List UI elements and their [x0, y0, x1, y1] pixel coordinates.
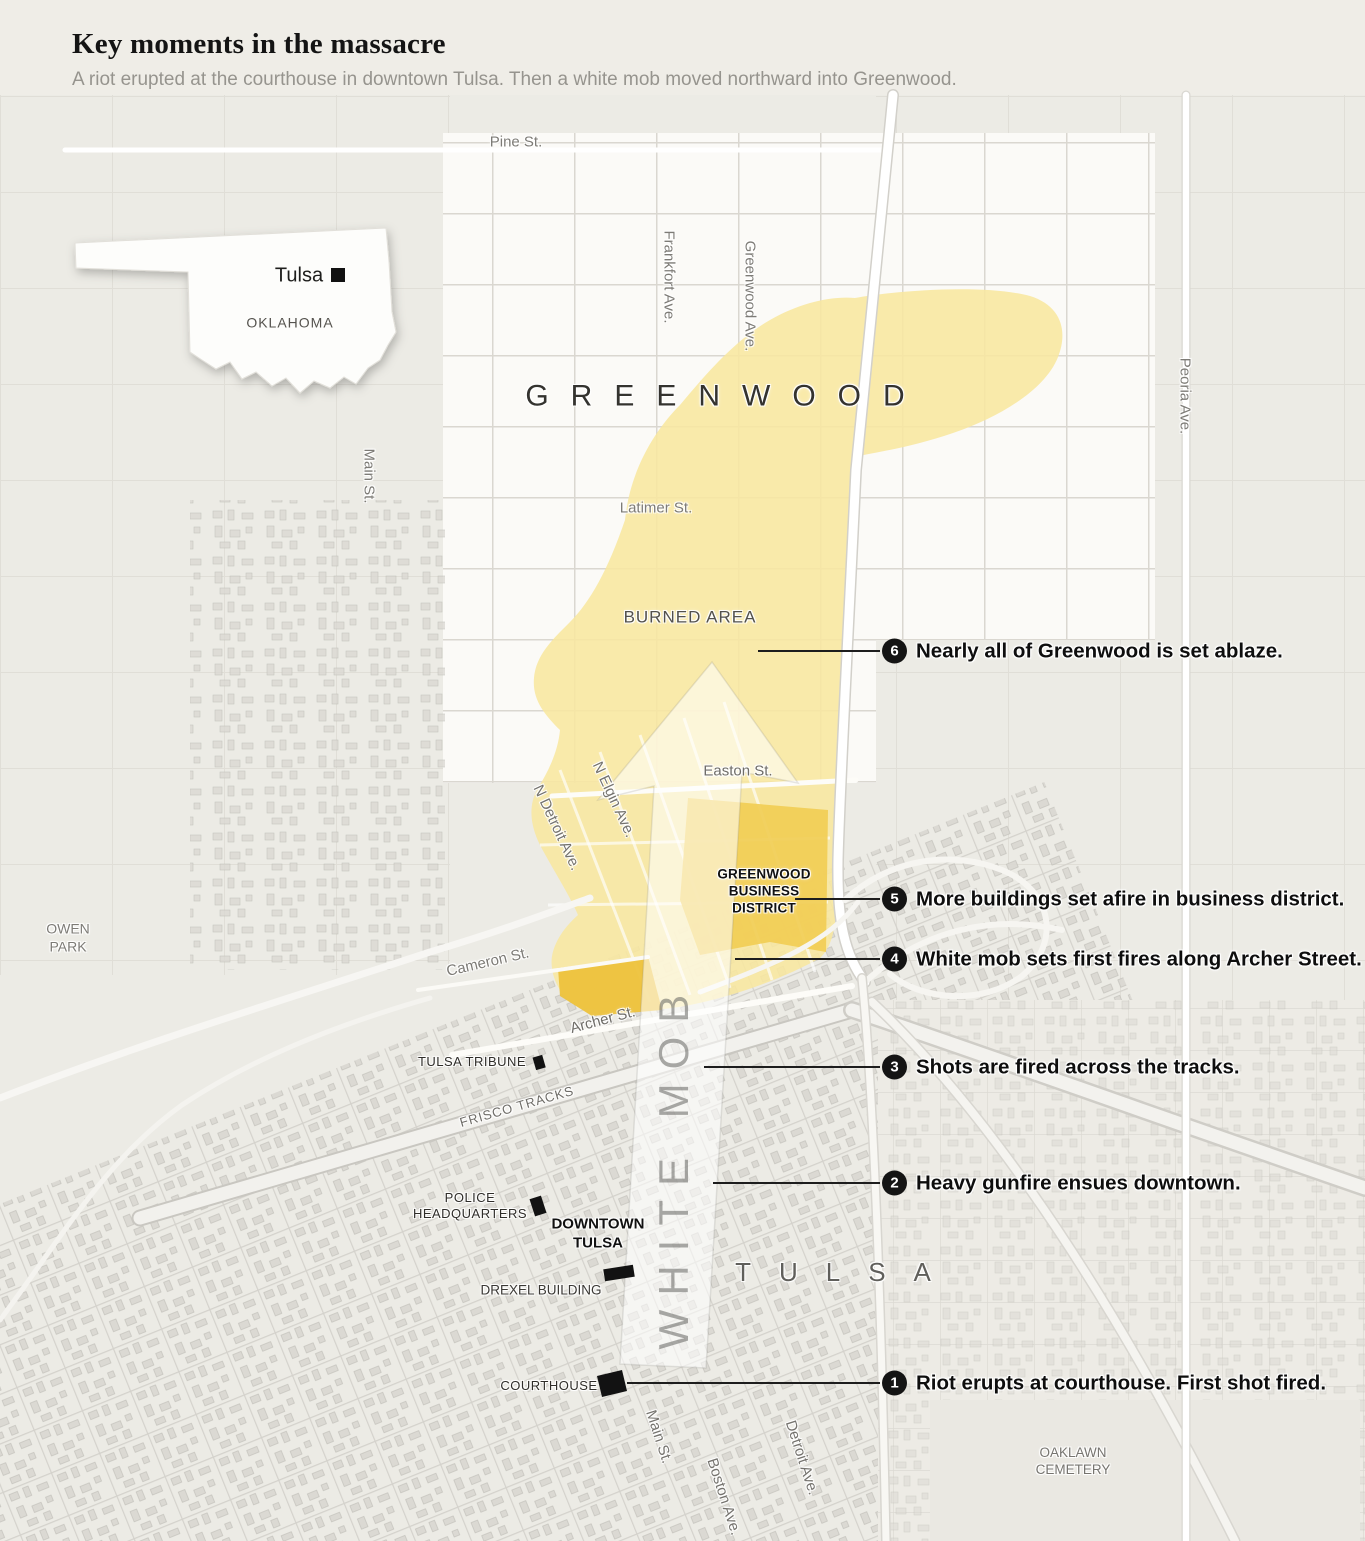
inset-tulsa-marker	[331, 268, 345, 282]
annotation-2-text: Heavy gunfire ensues downtown.	[916, 1171, 1241, 1195]
label-frankfort-ave: Frankfort Ave.	[659, 230, 678, 323]
annotation-1-badge: 1	[882, 1371, 907, 1396]
label-tulsa-city: TULSA	[735, 1256, 959, 1289]
label-peoria-ave: Peoria Ave.	[1175, 358, 1194, 434]
inset-tulsa-label: Tulsa	[275, 264, 323, 289]
label-oaklawn-cemetery: OAKLAWN CEMETERY	[1026, 1445, 1121, 1479]
annotation-4-badge: 4	[882, 947, 907, 972]
annotation-3-badge: 3	[882, 1055, 907, 1080]
annotation-6-text: Nearly all of Greenwood is set ablaze.	[916, 639, 1283, 663]
label-drexel-building: DREXEL BUILDING	[480, 1283, 601, 1300]
annotation-1: 1 Riot erupts at courthouse. First shot …	[882, 1371, 1326, 1396]
annotation-5: 5 More buildings set afire in business d…	[882, 887, 1344, 912]
annotation-6: 6 Nearly all of Greenwood is set ablaze.	[882, 639, 1283, 664]
label-pine-st: Pine St.	[490, 134, 543, 153]
annotation-4-text: White mob sets first fires along Archer …	[916, 947, 1362, 971]
label-latimer-st: Latimer St.	[620, 500, 693, 519]
annotation-3: 3 Shots are fired across the tracks.	[882, 1055, 1240, 1080]
infographic-root: { "header": { "title": "Key moments in t…	[0, 0, 1365, 1541]
annotation-1-text: Riot erupts at courthouse. First shot fi…	[916, 1371, 1326, 1395]
label-main-st-north: Main St.	[359, 448, 378, 503]
label-police-headquarters: POLICE HEADQUARTERS	[408, 1190, 532, 1223]
label-burned-area: BURNED AREA	[624, 606, 757, 627]
label-greenwood-ave: Greenwood Ave.	[740, 241, 759, 352]
annotation-2: 2 Heavy gunfire ensues downtown.	[882, 1171, 1241, 1196]
label-easton-st: Easton St.	[703, 763, 772, 782]
annotation-3-text: Shots are fired across the tracks.	[916, 1055, 1240, 1079]
label-greenwood-district: GREENWOOD	[525, 377, 926, 415]
label-courthouse: COURTHOUSE	[500, 1378, 597, 1394]
annotation-2-badge: 2	[882, 1171, 907, 1196]
inset-oklahoma-label: OKLAHOMA	[246, 314, 333, 332]
annotation-5-badge: 5	[882, 887, 907, 912]
label-white-mob: WHITE MOB	[650, 981, 698, 1350]
header: Key moments in the massacre A riot erupt…	[72, 28, 1172, 91]
label-tulsa-tribune: TULSA TRIBUNE	[418, 1054, 526, 1070]
annotation-5-text: More buildings set afire in business dis…	[916, 887, 1344, 911]
label-downtown-tulsa: DOWNTOWN TULSA	[542, 1215, 654, 1253]
label-owen-park: OWEN PARK	[32, 921, 104, 956]
label-greenwood-business-district: GREENWOOD BUSINESS DISTRICT	[715, 867, 813, 918]
page-subtitle: A riot erupted at the courthouse in down…	[72, 69, 1172, 91]
annotation-4: 4 White mob sets first fires along Arche…	[882, 947, 1362, 972]
page-title: Key moments in the massacre	[72, 28, 1172, 61]
annotation-6-badge: 6	[882, 639, 907, 664]
